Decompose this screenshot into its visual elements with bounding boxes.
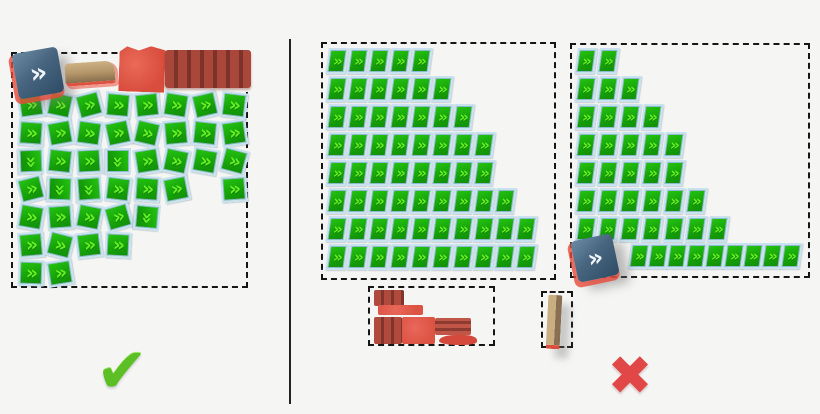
chevron-glyph: » <box>416 138 426 153</box>
green-chevron-tile: » <box>409 104 433 130</box>
chevron-glyph: » <box>713 222 723 237</box>
green-chevron-tile: » <box>325 160 349 186</box>
chevron-glyph: » <box>479 222 489 237</box>
chevron-glyph: » <box>669 166 679 181</box>
green-chevron-tile: » <box>684 216 708 242</box>
chevron-glyph: » <box>353 110 363 125</box>
green-chevron-tile: » <box>18 148 45 175</box>
green-chevron-tile: » <box>132 146 162 176</box>
chevron-glyph: » <box>581 54 591 69</box>
green-chevron-tile: » <box>388 188 412 214</box>
green-chevron-tile: » <box>325 244 349 270</box>
chevron-glyph: » <box>416 110 426 125</box>
green-chevron-tile: » <box>189 89 220 120</box>
green-chevron-tile: » <box>618 76 642 102</box>
green-chevron-tile: » <box>75 147 102 174</box>
chevron-glyph: » <box>458 166 468 181</box>
chevron-glyph: » <box>25 123 37 143</box>
green-chevron-tile: » <box>451 244 475 270</box>
chevron-glyph: » <box>332 222 342 237</box>
chevron-glyph: » <box>137 211 157 223</box>
chevron-glyph: » <box>625 82 635 97</box>
chevron-glyph: » <box>112 95 124 115</box>
chevron-glyph: » <box>140 123 154 144</box>
green-chevron-tile: » <box>325 48 349 74</box>
chevron-glyph: » <box>353 250 363 265</box>
chevron-glyph: » <box>50 184 69 195</box>
chevron-glyph: » <box>710 249 720 264</box>
green-chevron-tile: » <box>409 132 433 158</box>
green-chevron-tile: » <box>574 160 598 186</box>
green-chevron-tile: » <box>388 104 412 130</box>
chevron-glyph: » <box>353 166 363 181</box>
chevron-glyph: » <box>647 110 657 125</box>
green-chevron-tile: » <box>388 48 412 74</box>
tan-wedge <box>64 60 115 86</box>
green-chevron-tile: » <box>367 244 391 270</box>
green-chevron-tile: » <box>388 132 412 158</box>
chevron-glyph: » <box>581 138 591 153</box>
chevron-glyph: » <box>79 183 99 195</box>
green-chevron-tile: » <box>574 48 598 74</box>
green-chevron-tile: » <box>161 90 191 120</box>
green-chevron-tile: » <box>325 216 349 242</box>
green-chevron-tile: » <box>346 76 370 102</box>
green-chevron-tile: » <box>105 148 131 174</box>
chevron-glyph: » <box>669 194 679 209</box>
chevron-glyph: » <box>82 94 97 115</box>
chevron-glyph: » <box>25 235 37 255</box>
green-chevron-tile: » <box>618 160 642 186</box>
green-chevron-tile: » <box>662 188 686 214</box>
chevron-glyph: » <box>437 250 447 265</box>
green-chevron-tile: » <box>346 160 370 186</box>
green-chevron-tile: » <box>367 132 391 158</box>
chevron-glyph: » <box>54 151 66 171</box>
chevron-glyph: » <box>500 194 510 209</box>
green-chevron-tile: » <box>346 244 370 270</box>
chevron-glyph: » <box>169 151 183 172</box>
chevron-glyph: » <box>691 249 701 264</box>
green-chevron-tile: » <box>220 91 249 120</box>
green-chevron-tile: » <box>346 188 370 214</box>
chevron-glyph: » <box>21 156 40 167</box>
green-chevron-tile: » <box>574 188 598 214</box>
chevron-glyph: » <box>767 249 777 264</box>
green-chevron-tile: » <box>451 104 475 130</box>
chevron-glyph: » <box>416 82 426 97</box>
blue-chevron-icon: » <box>11 46 64 99</box>
green-chevron-tile: » <box>47 176 74 203</box>
green-chevron-tile: » <box>451 216 475 242</box>
red-brick <box>374 290 404 306</box>
chevron-glyph: » <box>581 82 591 97</box>
chevron-glyph: » <box>353 222 363 237</box>
chevron-glyph: » <box>332 166 342 181</box>
green-chevron-tile: » <box>618 104 642 130</box>
chevron-glyph: » <box>395 82 405 97</box>
green-chevron-tile: » <box>618 216 642 242</box>
chevron-glyph: » <box>647 194 657 209</box>
chevron-glyph: » <box>140 151 153 171</box>
chevron-glyph: » <box>458 250 468 265</box>
green-chevron-tile: » <box>409 216 433 242</box>
chevron-glyph: » <box>581 110 591 125</box>
chevron-glyph: » <box>141 95 153 115</box>
green-chevron-tile: » <box>451 160 475 186</box>
green-chevron-tile: » <box>409 76 433 102</box>
chevron-glyph: » <box>581 222 591 237</box>
green-chevron-tile: » <box>133 203 161 231</box>
chevron-glyph: » <box>83 123 96 143</box>
green-chevron-tile: » <box>451 188 475 214</box>
chevron-glyph: » <box>112 179 125 199</box>
correct-example-box: »»»»»»»»»»»»»»»»»»»»»»»»»»»»»»»»»»»»»»»»… <box>11 52 248 288</box>
chevron-glyph: » <box>54 207 66 227</box>
green-chevron-tile: » <box>367 160 391 186</box>
chevron-glyph: » <box>416 222 426 237</box>
chevron-glyph: » <box>603 54 613 69</box>
green-chevron-tile: » <box>161 146 192 177</box>
chevron-glyph: » <box>332 110 342 125</box>
green-chevron-tile: » <box>662 160 686 186</box>
incorrect-example-box-rows: »»»»»»»»»»»»»»»»»»»»»»»»»»»»»»»»»»»»»»»»… <box>321 42 556 280</box>
green-chevron-tile: » <box>514 216 538 242</box>
chevron-glyph: » <box>521 250 531 265</box>
chevron-glyph: » <box>634 249 644 264</box>
chevron-glyph: » <box>228 95 241 115</box>
green-chevron-tile: » <box>388 244 412 270</box>
chevron-glyph: » <box>332 54 342 69</box>
chevron-glyph: » <box>500 222 510 237</box>
chevron-glyph: » <box>691 194 701 209</box>
chevron-glyph: » <box>169 179 183 200</box>
green-chevron-tile: » <box>430 216 454 242</box>
green-chevron-tile: » <box>574 104 598 130</box>
green-chevron-tile: » <box>640 216 664 242</box>
chevron-glyph: » <box>83 235 96 255</box>
red-brick <box>435 318 471 335</box>
chevron-glyph: » <box>169 95 182 115</box>
green-chevron-tile: » <box>596 76 620 102</box>
chevron-glyph: » <box>647 138 657 153</box>
chevron-glyph: » <box>353 82 363 97</box>
chevron-glyph: » <box>437 138 447 153</box>
green-chevron-tile: » <box>46 203 74 231</box>
blue-chevron-icon: » <box>570 233 620 283</box>
green-chevron-tile: » <box>346 48 370 74</box>
comparison-figure: »»»»»»»»»»»»»»»»»»»»»»»»»»»»»»»»»»»»»»»»… <box>0 0 820 414</box>
chevron-glyph: » <box>374 138 384 153</box>
green-chevron-tile: » <box>325 188 349 214</box>
chevron-glyph: » <box>521 222 531 237</box>
incorrect-example-box-triangle: »»»»»»»»»»»»»»»»»»»»»»»»»»»»»»»»»»»»»»»»… <box>570 43 810 278</box>
chevron-glyph: » <box>227 150 242 171</box>
green-chevron-tile: » <box>325 76 349 102</box>
green-chevron-tile: » <box>640 188 664 214</box>
green-chevron-tile: » <box>574 132 598 158</box>
chevron-glyph: » <box>672 249 682 264</box>
green-chevron-tile: » <box>662 216 686 242</box>
green-chevron-tile: » <box>131 117 162 148</box>
green-chevron-tile: » <box>75 231 104 260</box>
green-chevron-tile: » <box>472 244 496 270</box>
green-chevron-tile: » <box>17 231 45 259</box>
chevron-glyph: » <box>437 166 447 181</box>
red-striped-block <box>165 50 251 88</box>
chevron-glyph: » <box>395 250 405 265</box>
chevron-glyph: » <box>374 110 384 125</box>
chevron-glyph: » <box>625 222 635 237</box>
checkmark-icon: ✔ <box>96 340 148 402</box>
chevron-glyph: » <box>603 82 613 97</box>
chevron-glyph: » <box>53 95 67 116</box>
chevron-glyph: » <box>26 263 37 282</box>
chevron-glyph: » <box>395 194 405 209</box>
green-chevron-tile: » <box>367 48 391 74</box>
green-chevron-tile: » <box>104 231 131 258</box>
chevron-glyph: » <box>581 166 591 181</box>
chevron-glyph: » <box>395 222 405 237</box>
chevron-glyph: » <box>625 138 635 153</box>
green-chevron-tile: » <box>430 188 454 214</box>
chevron-glyph: » <box>332 250 342 265</box>
chevron-glyph: » <box>437 194 447 209</box>
chevron-glyph: » <box>395 138 405 153</box>
chevron-glyph: » <box>479 194 489 209</box>
green-chevron-tile: » <box>640 160 664 186</box>
chevron-glyph: » <box>416 250 426 265</box>
chevron-glyph: » <box>458 138 468 153</box>
green-chevron-tile: » <box>133 175 161 203</box>
green-chevron-tile: » <box>74 118 103 147</box>
green-chevron-tile: » <box>472 216 496 242</box>
chevron-glyph: » <box>669 222 679 237</box>
chevron-glyph: » <box>395 54 405 69</box>
green-chevron-tile: » <box>618 132 642 158</box>
green-chevron-tile: » <box>18 260 45 287</box>
chevron-glyph: » <box>374 82 384 97</box>
green-chevron-tile: » <box>409 160 433 186</box>
green-chevron-tile: » <box>73 89 105 121</box>
chevron-glyph: » <box>24 207 37 227</box>
green-chevron-tile: » <box>74 202 104 232</box>
chevron-glyph: » <box>374 194 384 209</box>
green-chevron-tile: » <box>596 48 620 74</box>
green-chevron-tile: » <box>162 119 190 147</box>
green-chevron-tile: » <box>493 216 517 242</box>
chevron-glyph: » <box>353 54 363 69</box>
green-chevron-tile: » <box>104 175 133 204</box>
green-chevron-tile: » <box>388 160 412 186</box>
green-chevron-tile: » <box>325 104 349 130</box>
chevron-glyph: » <box>170 123 182 143</box>
chevron-glyph: » <box>437 222 447 237</box>
chevron-glyph: » <box>748 249 758 264</box>
chevron-glyph: » <box>353 194 363 209</box>
chevron-glyph: » <box>374 166 384 181</box>
green-chevron-tile: » <box>409 244 433 270</box>
green-chevron-tile: » <box>472 160 496 186</box>
chevron-glyph: » <box>416 194 426 209</box>
green-chevron-tile: » <box>472 132 496 158</box>
chevron-glyph: » <box>82 207 96 228</box>
chevron-glyph: » <box>603 166 613 181</box>
green-chevron-tile: » <box>45 258 75 288</box>
chevron-glyph: » <box>458 110 468 125</box>
chevron-glyph: » <box>416 166 426 181</box>
green-chevron-tile: » <box>75 175 103 203</box>
chevron-glyph: » <box>332 194 342 209</box>
red-brick <box>439 335 477 345</box>
green-chevron-tile: » <box>514 244 538 270</box>
green-chevron-tile: » <box>618 188 642 214</box>
tan-slab <box>546 295 563 350</box>
chevron-glyph: » <box>500 250 510 265</box>
green-chevron-tile: » <box>367 188 391 214</box>
red-brick <box>402 317 435 344</box>
chevron-glyph: » <box>198 95 212 116</box>
red-brick <box>374 317 402 344</box>
green-chevron-tile: » <box>367 104 391 130</box>
green-chevron-tile: » <box>104 91 132 119</box>
chevron-glyph: » <box>199 123 211 143</box>
green-chevron-tile: » <box>15 173 47 205</box>
green-chevron-tile: » <box>45 118 75 148</box>
green-chevron-tile: » <box>574 76 598 102</box>
green-chevron-tile: » <box>472 188 496 214</box>
chevron-glyph: » <box>458 222 468 237</box>
green-chevron-tile: » <box>17 119 45 147</box>
chevron-glyph: » <box>437 82 447 97</box>
green-chevron-tile: » <box>640 132 664 158</box>
divider-line <box>289 39 291 404</box>
green-chevron-tile: » <box>409 48 433 74</box>
green-chevron-tile: » <box>103 118 134 149</box>
chevron-glyph: » <box>603 110 613 125</box>
chevron-glyph: » <box>647 166 657 181</box>
chevron-glyph: » <box>729 249 739 264</box>
green-chevron-tile: » <box>596 188 620 214</box>
green-chevron-tile: » <box>367 216 391 242</box>
chevron-glyph: » <box>647 222 657 237</box>
green-chevron-tile: » <box>346 104 370 130</box>
chevron-glyph: » <box>416 54 426 69</box>
green-chevron-tile: » <box>430 104 454 130</box>
green-chevron-tile: » <box>662 132 686 158</box>
green-chevron-tile: » <box>16 202 46 232</box>
chevron-glyph: » <box>437 110 447 125</box>
chevron-glyph: » <box>653 249 663 264</box>
red-brick <box>378 305 423 315</box>
green-chevron-tile: » <box>596 132 620 158</box>
chevron-glyph: » <box>603 194 613 209</box>
chevron-glyph: » <box>198 151 211 171</box>
chevron-glyph: » <box>141 179 153 199</box>
chevron-glyph: » <box>228 123 241 143</box>
chevron-glyph: » <box>332 138 342 153</box>
green-chevron-tile: » <box>779 243 803 269</box>
green-chevron-tile: » <box>430 76 454 102</box>
green-chevron-tile: » <box>409 188 433 214</box>
chevron-glyph: » <box>395 110 405 125</box>
chevron-glyph: » <box>24 179 39 200</box>
green-chevron-tile: » <box>430 132 454 158</box>
green-chevron-tile: » <box>388 76 412 102</box>
green-chevron-tile: » <box>430 160 454 186</box>
green-chevron-tile: » <box>220 175 248 203</box>
green-chevron-tile: » <box>325 132 349 158</box>
green-chevron-tile: » <box>388 216 412 242</box>
green-chevron-tile: » <box>218 145 250 177</box>
chevron-glyph: » <box>374 250 384 265</box>
chevron-glyph: » <box>479 166 489 181</box>
chevron-glyph: » <box>625 194 635 209</box>
cross-icon: ✖ <box>607 349 652 403</box>
chevron-glyph: » <box>479 250 489 265</box>
green-chevron-tile: » <box>219 118 248 147</box>
green-chevron-tile: » <box>191 119 220 148</box>
chevron-glyph: » <box>625 110 635 125</box>
chevron-glyph: » <box>332 82 342 97</box>
chevron-glyph: » <box>83 151 94 171</box>
leftover-bricks-box <box>368 286 495 346</box>
green-chevron-tile: » <box>346 132 370 158</box>
leftover-slab-box <box>541 291 573 348</box>
chevron-glyph: » <box>395 166 405 181</box>
chevron-glyph: » <box>228 179 240 199</box>
chevron-glyph: » <box>110 206 125 227</box>
chevron-glyph: » <box>53 123 66 143</box>
chevron-glyph: » <box>479 138 489 153</box>
green-chevron-tile: » <box>44 229 76 261</box>
green-chevron-tile: » <box>133 91 162 120</box>
chevron-glyph: » <box>581 194 591 209</box>
chevron-glyph: » <box>458 194 468 209</box>
green-chevron-tile: » <box>46 147 75 176</box>
chevron-glyph: » <box>374 54 384 69</box>
green-chevron-tile: » <box>430 244 454 270</box>
green-chevron-tile: » <box>493 244 517 270</box>
chevron-glyph: » <box>353 138 363 153</box>
green-chevron-tile: » <box>367 76 391 102</box>
green-chevron-tile: » <box>161 174 191 204</box>
chevron-glyph: » <box>109 156 128 166</box>
green-chevron-tile: » <box>640 104 664 130</box>
chevron-glyph: » <box>112 235 123 255</box>
chevron-glyph: » <box>669 138 679 153</box>
chevron-glyph: » <box>625 166 635 181</box>
green-chevron-tile: » <box>596 160 620 186</box>
green-chevron-tile: » <box>451 132 475 158</box>
chevron-glyph: » <box>603 138 613 153</box>
chevron-glyph: » <box>53 263 66 283</box>
green-chevron-tile: » <box>190 146 220 176</box>
green-chevron-tile: » <box>684 188 708 214</box>
green-chevron-tile: » <box>102 201 134 233</box>
green-chevron-tile: » <box>706 216 730 242</box>
green-chevron-tile: » <box>596 104 620 130</box>
green-chevron-tile: » <box>493 188 517 214</box>
green-chevron-tile: » <box>346 216 370 242</box>
chevron-glyph: » <box>374 222 384 237</box>
chevron-glyph: » <box>53 235 68 256</box>
chevron-glyph: » <box>786 249 796 264</box>
chevron-glyph: » <box>691 222 701 237</box>
chevron-glyph: » <box>111 123 125 144</box>
red-block <box>118 45 166 93</box>
